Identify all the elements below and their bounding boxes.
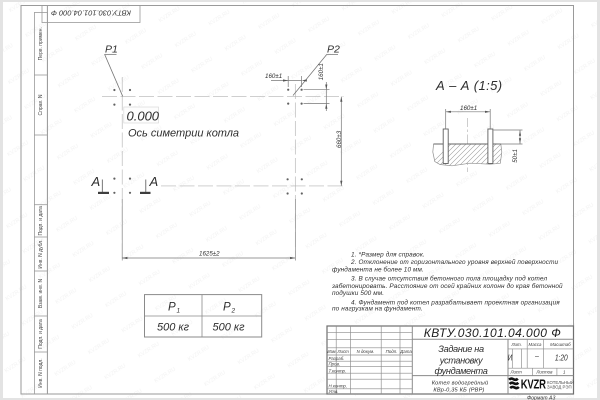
svg-text:Изм.: Изм. [327,349,336,354]
svg-text:Разраб.: Разраб. [329,356,345,361]
svg-text:50±1: 50±1 [512,149,519,163]
svg-text:КВр-0,35 КБ (РВР): КВр-0,35 КБ (РВР) [433,388,484,394]
svg-text:Подп. и дата: Подп. и дата [38,319,44,349]
svg-text:по нагрузкам на фундамент.: по нагрузкам на фундамент. [332,305,423,313]
svg-text:500 кг: 500 кг [157,322,190,334]
svg-text:ЗАВОД РЭП: ЗАВОД РЭП [547,384,572,389]
svg-text:подушки 500 мм.: подушки 500 мм. [332,289,384,297]
svg-text:Лист: Лист [337,349,350,354]
svg-text:Перв. примен.: Перв. примен. [38,27,44,60]
svg-text:Ось симетрии котла: Ось симетрии котла [128,128,239,140]
svg-text:P2: P2 [327,44,340,56]
svg-text:–: – [534,353,539,360]
svg-text:Дата: Дата [399,349,412,354]
svg-text:КВТУ.030.101.04.000 Ф: КВТУ.030.101.04.000 Ф [51,9,131,18]
svg-text:660±3: 660±3 [336,130,343,148]
svg-text:0.000: 0.000 [127,109,160,124]
svg-text:Пров.: Пров. [329,362,341,367]
svg-text:А – А (1:5): А – А (1:5) [435,78,503,93]
svg-text:Масса: Масса [529,342,543,347]
svg-text:N докум.: N докум. [357,349,375,354]
svg-text:Н.контр.: Н.контр. [329,384,348,389]
svg-text:Т.контр.: Т.контр. [329,369,347,374]
svg-text:Лит.: Лит. [511,342,522,347]
svg-text:И: И [508,353,513,363]
svg-text:установку: установку [439,355,484,365]
svg-text:500 кг: 500 кг [212,322,245,334]
svg-text:P: P [168,302,176,314]
svg-text:1: 1 [177,308,181,315]
svg-text:Листов: Листов [535,369,553,374]
svg-text:160±1: 160±1 [265,73,282,80]
svg-text:A: A [149,174,159,189]
svg-text:A: A [91,174,101,189]
svg-text:P1: P1 [105,44,118,56]
svg-text:3. В случае отсутствия бетонн: 3. В случае отсутствия бетонного пола пл… [351,275,547,283]
svg-text:160±1: 160±1 [318,63,325,80]
svg-text:Задание на: Задание на [438,344,484,354]
svg-text:Котел водогрейный: Котел водогрейный [432,379,489,386]
svg-text:Взам. инв. N: Взам. инв. N [38,279,44,309]
svg-text:Справ. N: Справ. N [38,94,44,115]
svg-text:Масштаб: Масштаб [550,342,571,347]
svg-text:KVZR: KVZR [521,378,546,392]
svg-text:2. Отклонение от горизонтальн: 2. Отклонение от горизонтального уровня … [350,258,559,266]
svg-text:P: P [223,302,231,314]
svg-text:1625±2: 1625±2 [199,251,220,258]
svg-text:Формат А3: Формат А3 [527,395,555,400]
svg-text:Инв. N дубл.: Инв. N дубл. [38,239,44,268]
svg-text:фундамента: фундамента [435,366,488,376]
svg-text:1:20: 1:20 [555,353,569,363]
svg-text:забетонировать. Расстояние от: забетонировать. Расстояние от осей крайн… [331,282,563,290]
svg-text:Лист: Лист [509,369,522,374]
svg-text:2: 2 [231,308,236,315]
svg-text:КВТУ.030.101.04.000 Ф: КВТУ.030.101.04.000 Ф [424,326,561,340]
svg-text:1. *Размер для справок.: 1. *Размер для справок. [351,251,425,259]
svg-text:160±1: 160±1 [460,105,477,112]
svg-text:Подп. и дата: Подп. и дата [38,206,44,236]
svg-text:Утв.: Утв. [329,389,339,394]
svg-text:фундамента не более 10 мм.: фундамента не более 10 мм. [332,266,424,274]
svg-text:Инв. N подл.: Инв. N подл. [38,358,44,387]
svg-text:Подп.: Подп. [386,349,398,354]
